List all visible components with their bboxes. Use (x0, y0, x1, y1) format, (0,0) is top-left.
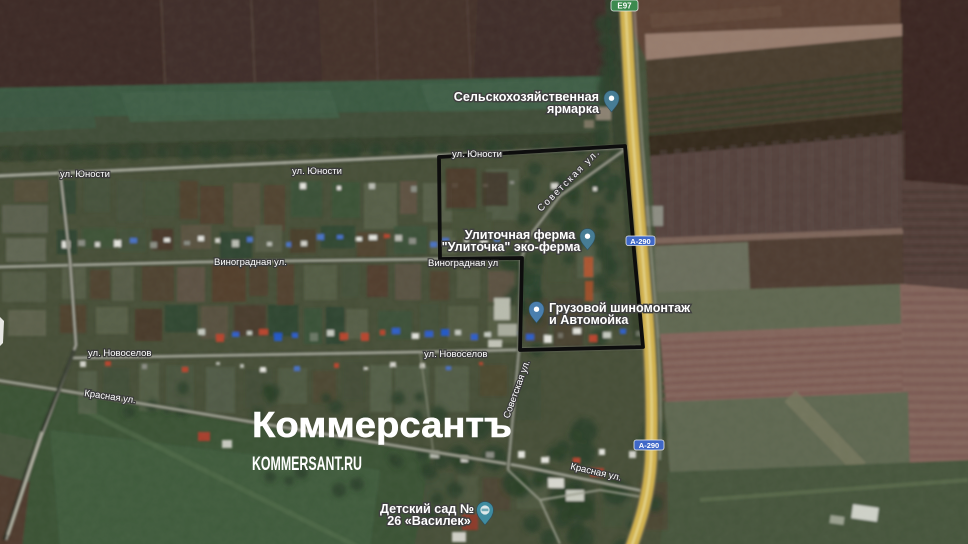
svg-text:ул. Юности: ул. Юности (292, 166, 342, 177)
svg-text:Виноградная ул.: Виноградная ул. (214, 257, 287, 268)
svg-text:ярмарка: ярмарка (547, 102, 600, 116)
svg-text:"Улиточка" эко-ферма: "Улиточка" эко-ферма (442, 240, 582, 254)
svg-text:ул. Юности: ул. Юности (60, 169, 110, 180)
svg-text:Виноградная ул: Виноградная ул (428, 258, 498, 269)
svg-text:E97: E97 (617, 2, 632, 11)
svg-text:и Автомойка: и Автомойка (549, 313, 629, 327)
svg-text:А-290: А-290 (639, 441, 659, 450)
svg-text:ул. Новоселов: ул. Новоселов (88, 348, 151, 359)
svg-text:KOMMERSANT.RU: KOMMERSANT.RU (252, 454, 362, 475)
svg-text:ул. Новоселов: ул. Новоселов (424, 349, 487, 360)
svg-text:А-290: А-290 (630, 237, 650, 246)
svg-text:ул. Юности: ул. Юности (452, 149, 502, 160)
svg-text:26 «Василек»: 26 «Василек» (387, 514, 471, 528)
svg-text:Коммерсантъ: Коммерсантъ (252, 404, 512, 445)
